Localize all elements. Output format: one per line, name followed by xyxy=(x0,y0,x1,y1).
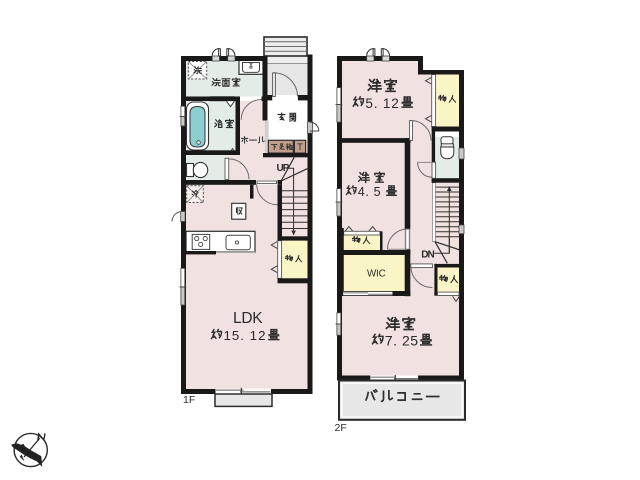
svg-text:4. 5: 4. 5 xyxy=(358,185,381,199)
svg-text:UP: UP xyxy=(277,163,290,174)
svg-text:DN: DN xyxy=(421,249,434,260)
svg-text:1F: 1F xyxy=(183,394,195,406)
svg-text:5. 12: 5. 12 xyxy=(365,96,399,111)
svg-text:LDK: LDK xyxy=(233,310,263,327)
svg-text:2F: 2F xyxy=(335,422,347,434)
svg-text:7. 25: 7. 25 xyxy=(385,333,419,349)
svg-text:WIC: WIC xyxy=(367,269,386,280)
svg-text:15. 12: 15. 12 xyxy=(224,328,267,343)
svg-text:T: T xyxy=(297,142,303,152)
